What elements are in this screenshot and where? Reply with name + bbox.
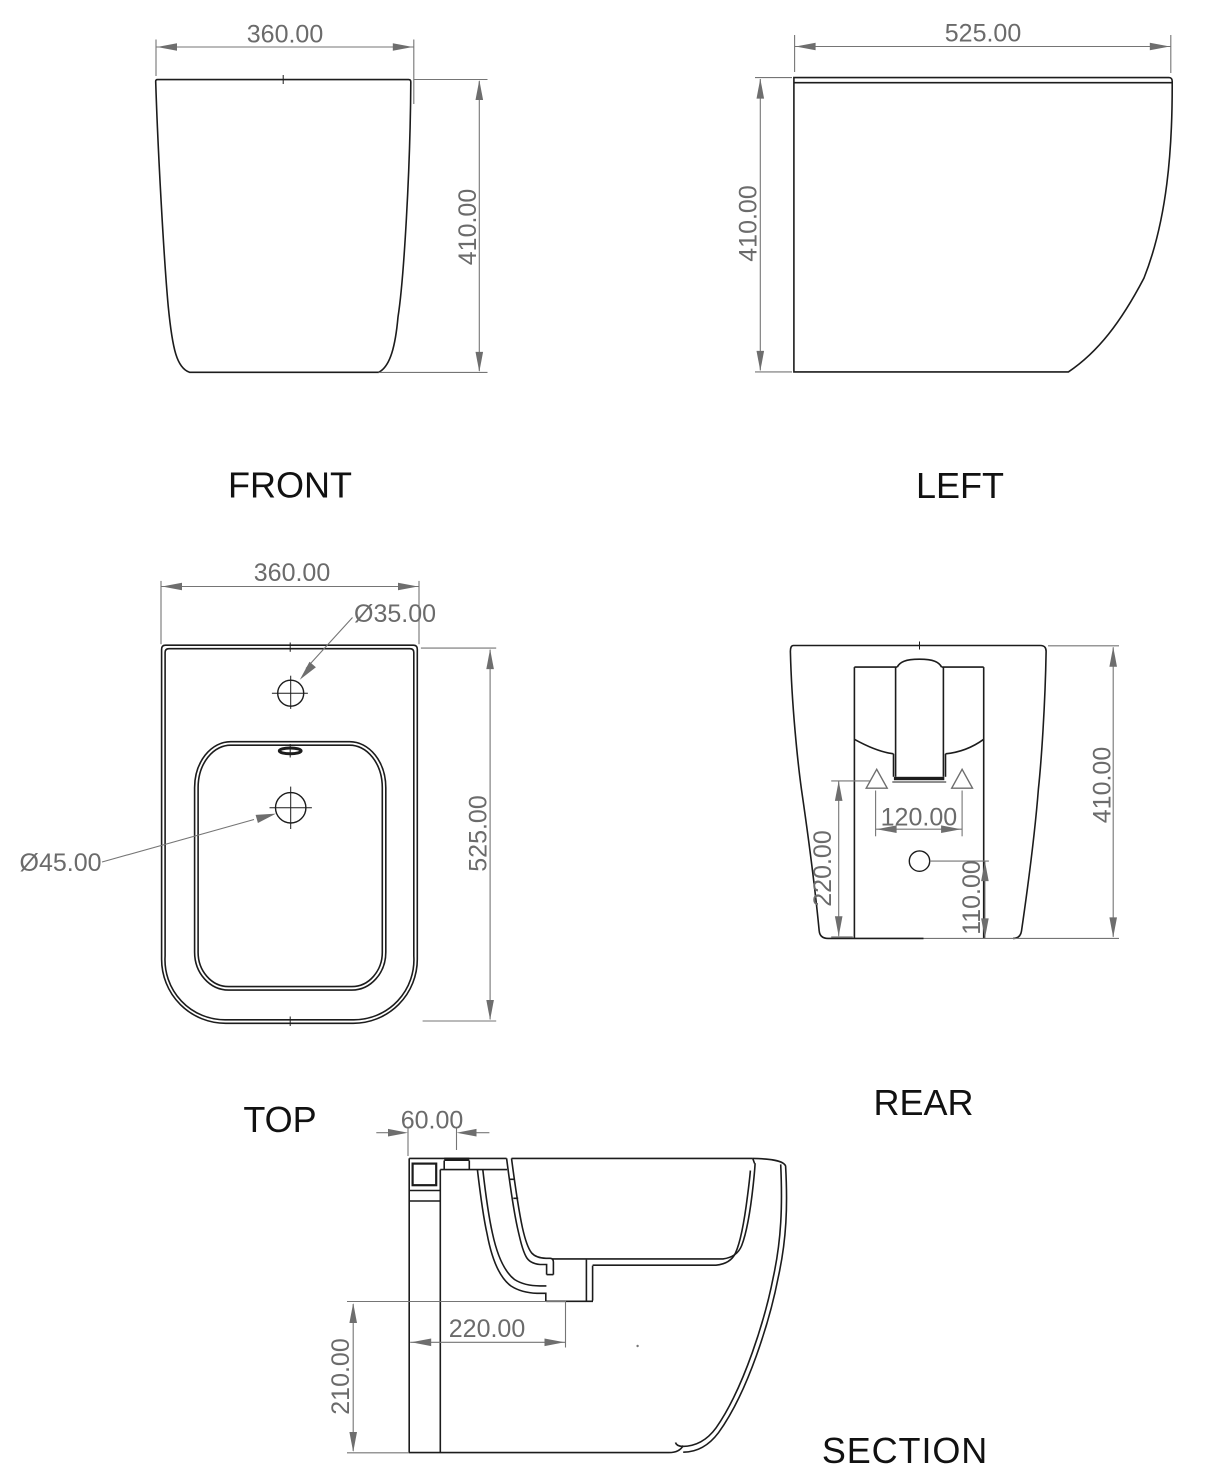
svg-text:360.00: 360.00	[254, 559, 330, 587]
svg-text:REAR: REAR	[873, 1082, 973, 1123]
svg-text:410.00: 410.00	[1089, 747, 1117, 823]
svg-text:525.00: 525.00	[465, 795, 493, 871]
svg-text:Ø35.00: Ø35.00	[354, 600, 436, 628]
svg-text:410.00: 410.00	[454, 189, 482, 265]
svg-text:220.00: 220.00	[449, 1315, 525, 1343]
svg-text:525.00: 525.00	[945, 19, 1021, 47]
svg-text:TOP: TOP	[243, 1099, 316, 1140]
svg-text:210.00: 210.00	[327, 1338, 355, 1414]
svg-text:Ø45.00: Ø45.00	[20, 849, 102, 877]
svg-text:60.00: 60.00	[401, 1107, 464, 1135]
svg-text:220.00: 220.00	[809, 830, 837, 906]
svg-text:360.00: 360.00	[247, 20, 323, 48]
svg-text:120.00: 120.00	[881, 804, 957, 832]
svg-text:110.00: 110.00	[958, 860, 986, 935]
svg-text:SECTION: SECTION	[822, 1430, 988, 1471]
svg-text:410.00: 410.00	[735, 185, 763, 261]
svg-text:FRONT: FRONT	[228, 465, 352, 506]
svg-text:LEFT: LEFT	[916, 465, 1004, 506]
